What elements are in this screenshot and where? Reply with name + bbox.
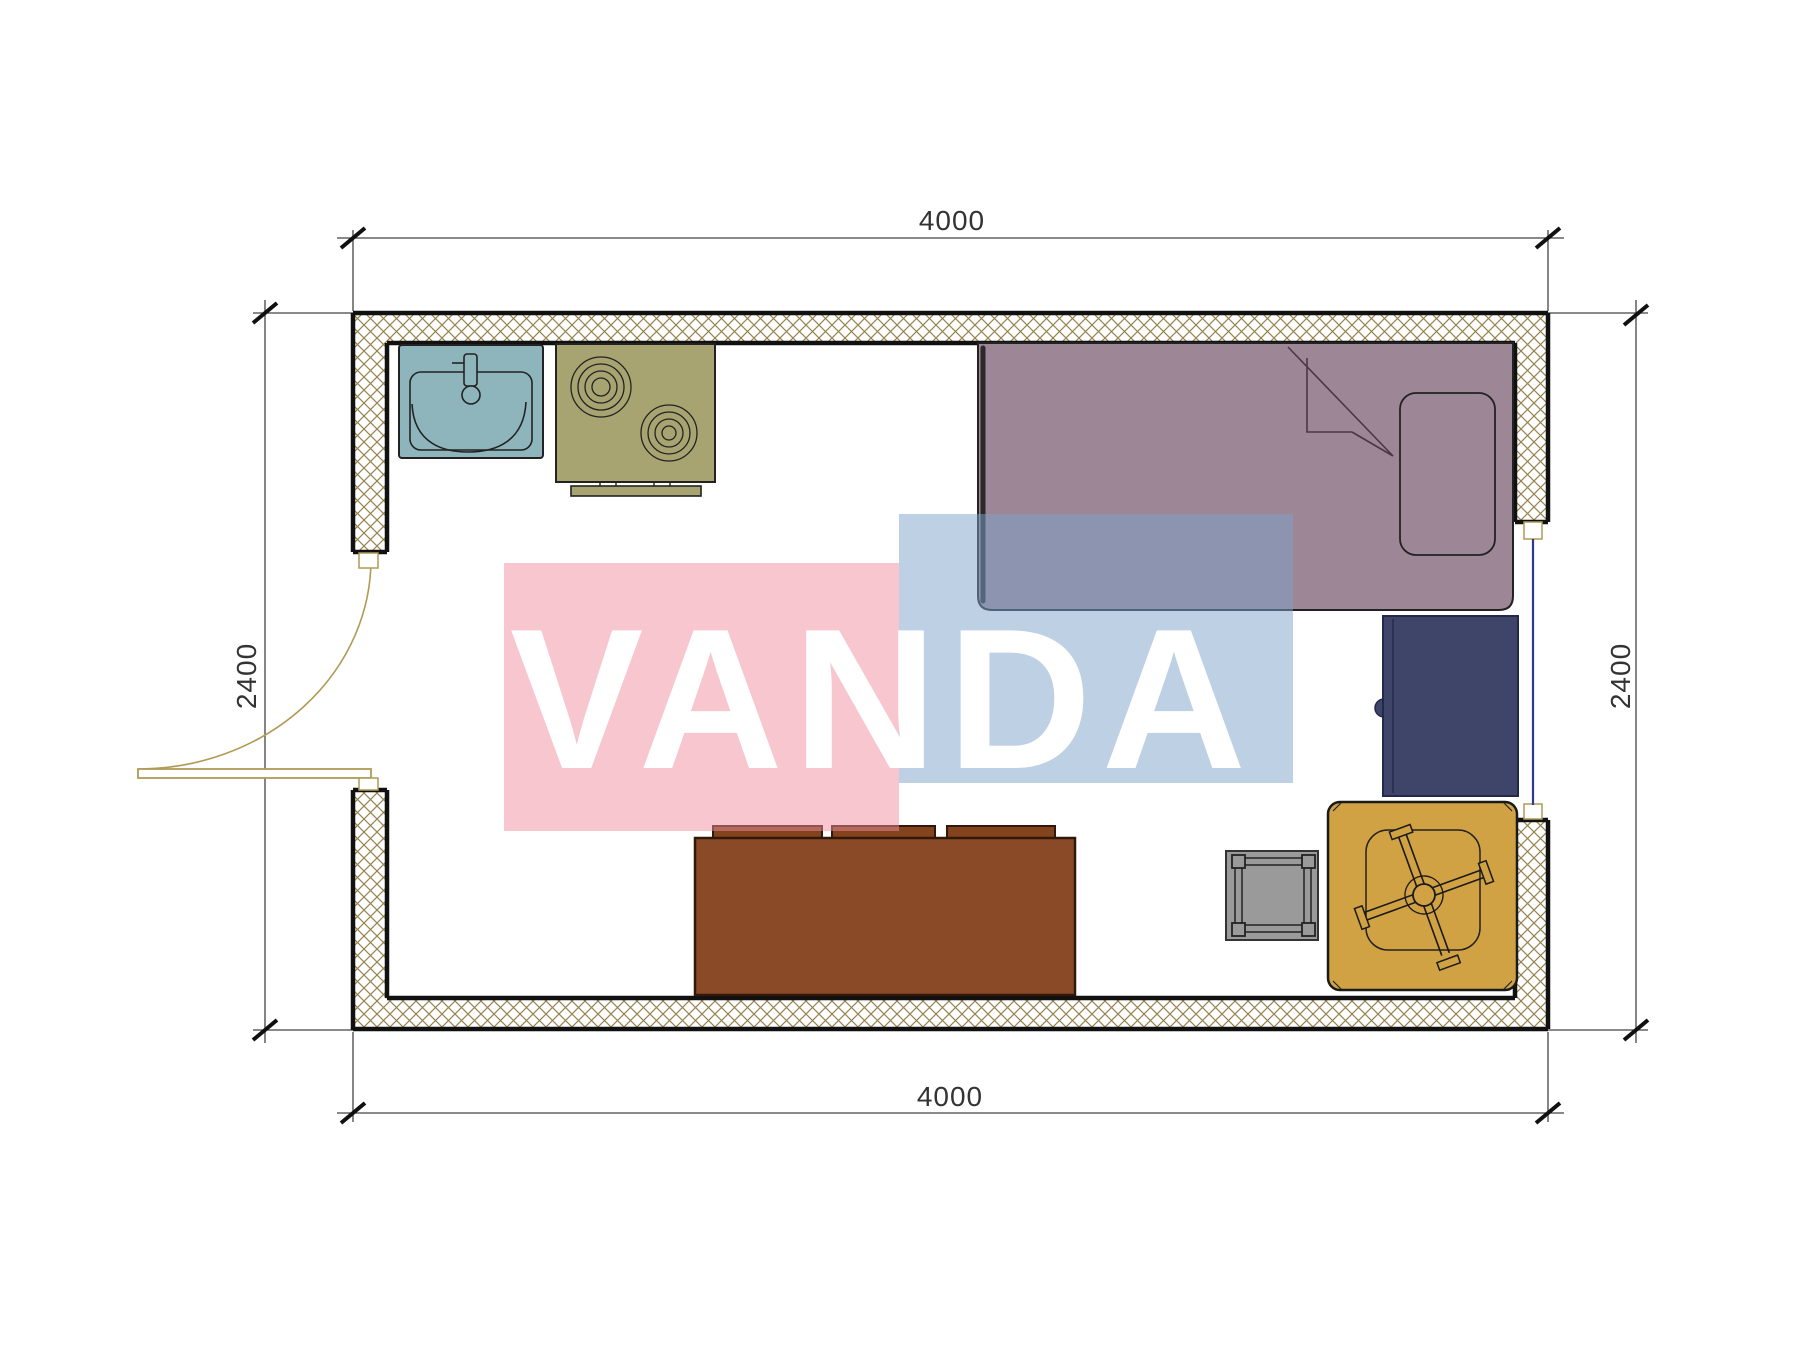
faucet — [464, 354, 477, 386]
wall-right-lower — [1514, 820, 1548, 1030]
wall-bottom — [353, 998, 1548, 1030]
stove-handle — [571, 486, 701, 496]
sofa-body — [695, 838, 1075, 995]
floor-plan-canvas: 4000 4000 2400 2400 — [0, 0, 1800, 1350]
desk-top — [1383, 616, 1518, 796]
pillow — [1400, 393, 1495, 555]
window-jamb-bottom — [1524, 804, 1542, 819]
wall-left-upper — [353, 313, 387, 552]
window-jamb-top — [1524, 522, 1542, 539]
sofa — [695, 826, 1075, 995]
sink — [399, 345, 543, 458]
floor-plan-drawing: 4000 4000 2400 2400 — [0, 0, 1800, 1350]
dim-text-left: 2400 — [231, 643, 262, 709]
door-jamb-top — [359, 553, 378, 568]
stool — [1226, 851, 1318, 940]
wall-top — [353, 313, 1548, 345]
door-leaf — [138, 769, 371, 778]
dim-text-right: 2400 — [1605, 643, 1636, 709]
door-jamb-bottom — [359, 778, 378, 790]
stool-leg — [1302, 923, 1315, 936]
dim-text-bottom: 4000 — [917, 1081, 983, 1112]
swivel-chair — [1328, 802, 1517, 990]
watermark-text: VANDA — [510, 588, 1256, 811]
stool-leg — [1232, 923, 1245, 936]
dim-text-top: 4000 — [919, 205, 985, 236]
stove — [556, 344, 715, 496]
wall-right-upper — [1514, 313, 1548, 522]
stool-leg — [1302, 855, 1315, 868]
dim-ext-top — [353, 230, 1548, 311]
desk — [1375, 616, 1518, 796]
window — [1524, 522, 1542, 819]
watermark: VANDA — [504, 514, 1293, 831]
dim-ext-left — [253, 313, 353, 1030]
stove-top — [556, 344, 715, 482]
drain — [462, 386, 480, 404]
stool-leg — [1232, 855, 1245, 868]
wall-left-lower — [353, 790, 387, 1030]
